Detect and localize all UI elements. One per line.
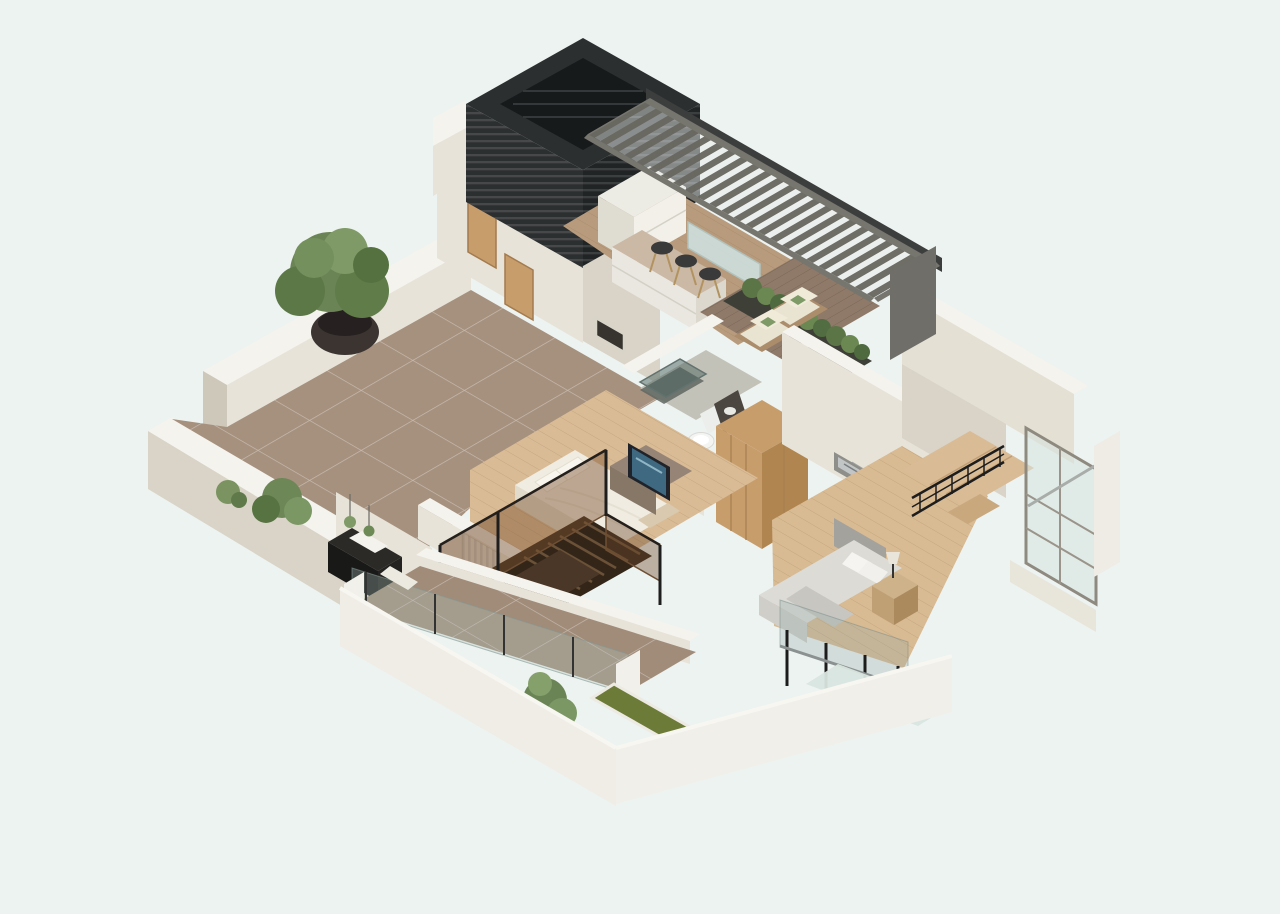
bed1-floor	[470, 390, 758, 612]
balcony-glass-railing	[352, 568, 628, 694]
amber-glass-balustrade	[440, 450, 660, 611]
vanity	[714, 390, 748, 434]
stair-hall	[902, 286, 1120, 632]
balcony-inner-wall-top	[416, 548, 700, 641]
terrace-parapet-top	[203, 234, 471, 385]
headboard	[834, 518, 886, 576]
shower-glass	[640, 359, 706, 397]
oak-cabinet	[806, 389, 852, 456]
tv	[628, 443, 670, 501]
hanging-plants	[344, 494, 375, 537]
stair-treads	[524, 522, 640, 589]
deck-item	[790, 354, 796, 360]
tower-interior-louvers	[513, 91, 653, 117]
pergola-frame-ne	[644, 98, 936, 266]
tower-interior	[500, 58, 666, 150]
pergola-gap-light	[588, 98, 936, 298]
floorplan-svg	[0, 0, 1280, 914]
pergola-slats	[588, 98, 936, 298]
window-ledge	[1010, 560, 1096, 632]
balcony	[340, 548, 952, 806]
radiator	[462, 532, 500, 590]
kitchen-cabinets	[598, 166, 686, 263]
outer-wall-band-left	[340, 588, 616, 806]
metal-handrail	[1028, 464, 1098, 506]
oak-door	[468, 196, 496, 268]
bed1-north-wall-top	[592, 416, 716, 487]
terrace-floor	[172, 290, 660, 561]
louver-tower	[433, 38, 700, 268]
bed2-wall-top	[782, 325, 960, 428]
pergola-frame-sw	[584, 134, 874, 302]
tower-right-louvers	[583, 104, 700, 266]
terrace-floor-grout	[172, 290, 660, 561]
pergola-frame-e	[874, 262, 940, 302]
bedroom-second	[759, 325, 988, 726]
kitchen-floor-planks	[563, 176, 838, 345]
shower-floor	[640, 367, 704, 404]
oak-wardrobe	[716, 400, 808, 549]
bed2-floor-planks	[772, 446, 988, 668]
hall-wall-top	[437, 133, 595, 225]
grass-planter-strip	[592, 684, 716, 756]
balcony-rail-posts	[366, 572, 573, 677]
terrace-parapet-end-face	[203, 371, 227, 443]
tower-left-louvers	[466, 104, 583, 268]
bed1-north-wall-face	[592, 423, 704, 516]
tower-left-face	[466, 104, 583, 268]
bed1-west-wall-top	[418, 498, 560, 580]
console-books	[349, 531, 388, 553]
pergola-top-beam	[646, 88, 942, 272]
stair-void	[440, 450, 660, 611]
bathroom	[622, 314, 762, 450]
potted-tree	[275, 228, 389, 355]
bed2-rail-posts	[787, 630, 898, 722]
bathroom-wall-top	[622, 314, 724, 373]
bathroom-floor	[640, 350, 762, 420]
deck-item	[801, 341, 809, 349]
terrace-southwall-face	[148, 431, 390, 635]
gray-bed	[759, 518, 902, 643]
tower-parapet-face	[433, 128, 466, 196]
tower-parapet-top	[433, 100, 466, 146]
outer-wall-band-right	[616, 656, 952, 804]
stairhall-big-wall	[902, 294, 1074, 464]
balcony-inner-wall-face	[416, 555, 690, 664]
stairwell-floor	[492, 516, 652, 608]
bedroom-master	[418, 390, 758, 614]
glass-floor-strip	[806, 664, 950, 726]
entry-hall	[437, 133, 660, 385]
kitchen-floor	[563, 176, 838, 345]
stair-winder	[498, 550, 600, 610]
terrace-shrub	[216, 478, 312, 525]
stairhall-landing	[902, 431, 1034, 507]
white-bed	[515, 450, 680, 566]
rail-channel	[780, 646, 908, 688]
background	[0, 0, 1280, 914]
balcony-floor-grout	[352, 566, 696, 692]
pergola	[584, 88, 942, 360]
wall-art	[834, 452, 928, 524]
toilet	[688, 404, 726, 450]
outer-wall-lip	[340, 588, 616, 748]
terrace-parapet-inner-face	[227, 248, 471, 429]
hall-wall-face	[437, 140, 583, 343]
nightstand	[872, 552, 918, 625]
balcony-floor	[352, 566, 696, 692]
wardrobe-hall	[592, 389, 852, 549]
stairhall-lower-wall	[902, 364, 1006, 498]
oak-door	[505, 254, 533, 320]
bed2-glass-balustrade	[780, 600, 908, 688]
hedge-planter-box	[723, 288, 872, 374]
pergola-frame-w	[584, 98, 650, 138]
glass-partition	[688, 222, 760, 290]
tv-screen	[632, 448, 666, 496]
bed2-floor	[772, 446, 988, 668]
stairhall-wall-top	[902, 286, 1088, 394]
tower-rim	[466, 38, 700, 170]
armchair	[764, 287, 828, 330]
terrace-southwall-top	[148, 417, 414, 577]
armchair	[734, 309, 798, 352]
pergola-end-wall	[890, 246, 936, 360]
deck-planks	[700, 257, 880, 361]
bed2-art-wall	[782, 332, 948, 540]
tower-right-face	[583, 104, 700, 266]
radiator-fins	[462, 532, 500, 590]
terrace-niche-wall	[336, 492, 432, 604]
black-console	[328, 528, 402, 601]
stair-steps-down	[948, 494, 1000, 524]
hall-return-wall	[583, 225, 660, 385]
lamp-shade	[886, 552, 900, 564]
landing-steps	[930, 447, 1012, 494]
kitchen-dining	[563, 166, 838, 345]
balcony-plant	[514, 672, 577, 728]
outer-wall-lip	[616, 656, 952, 748]
bed1-west-wall-face	[418, 505, 548, 614]
kitchen-island	[612, 230, 726, 331]
outer-pillar	[1094, 431, 1120, 577]
white-corner-post	[616, 650, 640, 714]
hall-small-window	[596, 318, 624, 352]
tv-console	[610, 443, 692, 515]
lounge-deck	[700, 257, 880, 374]
white-end-post	[344, 572, 364, 624]
balcony-step	[380, 566, 418, 590]
deck-floor	[700, 257, 880, 361]
floorplan-render	[0, 0, 1280, 914]
throw-blanket	[638, 503, 680, 528]
bar-stools	[650, 242, 721, 299]
bed1-floor-planks	[470, 390, 758, 612]
corner-window	[1026, 428, 1098, 604]
hedge	[742, 278, 870, 360]
black-railing	[912, 446, 1004, 516]
terrace	[148, 228, 660, 635]
